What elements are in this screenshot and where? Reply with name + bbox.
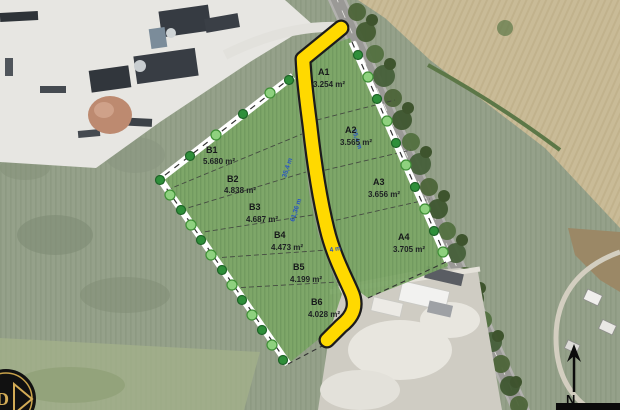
tree-marker-icon bbox=[239, 110, 248, 119]
parcel-id-label: B5 bbox=[293, 262, 305, 272]
tree-marker-icon bbox=[258, 326, 267, 335]
tree-marker-icon bbox=[373, 95, 382, 104]
parcel-id-label: A4 bbox=[398, 232, 410, 242]
tree-marker-icon bbox=[401, 160, 411, 170]
parcel-id-label: A1 bbox=[318, 67, 330, 77]
tree-marker-icon bbox=[165, 190, 175, 200]
parcel-area-label: 3.705 m² bbox=[393, 245, 425, 254]
parcel-area-label: 3.565 m² bbox=[340, 138, 372, 147]
parcel-area-label: 4.838 m² bbox=[224, 186, 256, 195]
tree-marker-icon bbox=[186, 220, 196, 230]
tree-marker-icon bbox=[382, 116, 392, 126]
tree-marker-icon bbox=[186, 152, 195, 161]
tree-marker-icon bbox=[238, 296, 247, 305]
tree-marker-icon bbox=[354, 51, 363, 60]
tree-marker-icon bbox=[265, 88, 275, 98]
tree-marker-icon bbox=[197, 236, 206, 245]
tree-marker-icon bbox=[363, 72, 373, 82]
tree-marker-icon bbox=[438, 247, 448, 257]
tree-marker-icon bbox=[392, 139, 401, 148]
parcel-id-label: B4 bbox=[274, 230, 286, 240]
parcel-area-label: 5.680 m² bbox=[203, 157, 235, 166]
parcel-id-label: A3 bbox=[373, 177, 385, 187]
watermark-bar bbox=[556, 403, 620, 410]
tree-marker-icon bbox=[411, 183, 420, 192]
parcel-id-label: B1 bbox=[206, 145, 218, 155]
tree-marker-icon bbox=[211, 130, 221, 140]
tree-marker-icon bbox=[267, 340, 277, 350]
tree-marker-icon bbox=[247, 310, 257, 320]
tree-marker-icon bbox=[430, 227, 439, 236]
tree-marker-icon bbox=[420, 204, 430, 214]
tree-marker-icon bbox=[206, 250, 216, 260]
parcel-area-label: 4.687 m² bbox=[246, 215, 278, 224]
tree-marker-icon bbox=[156, 176, 165, 185]
parcel-area-label: 4.199 m² bbox=[290, 275, 322, 284]
parcel-id-label: B3 bbox=[249, 202, 261, 212]
site-plan-canvas: 35,4 m 61,36 m 4 m 55,4 m A1 3.254 m² A2… bbox=[0, 0, 620, 410]
parcel-id-label: A2 bbox=[345, 125, 357, 135]
parcel-area-label: 4.028 m² bbox=[308, 310, 340, 319]
tree-marker-icon bbox=[227, 280, 237, 290]
aerial-site-plan: 35,4 m 61,36 m 4 m 55,4 m A1 3.254 m² A2… bbox=[0, 0, 620, 410]
parcel-area-label: 3.656 m² bbox=[368, 190, 400, 199]
tree-marker-icon bbox=[285, 76, 294, 85]
logo-letter: D bbox=[0, 389, 9, 409]
tree-marker-icon bbox=[279, 356, 288, 365]
parcel-id-label: B6 bbox=[311, 297, 323, 307]
tree-marker-icon bbox=[218, 266, 227, 275]
parcel-area-label: 3.254 m² bbox=[313, 80, 345, 89]
tree-marker-icon bbox=[177, 206, 186, 215]
parcel-id-label: B2 bbox=[227, 174, 239, 184]
parcel-area-label: 4.473 m² bbox=[271, 243, 303, 252]
